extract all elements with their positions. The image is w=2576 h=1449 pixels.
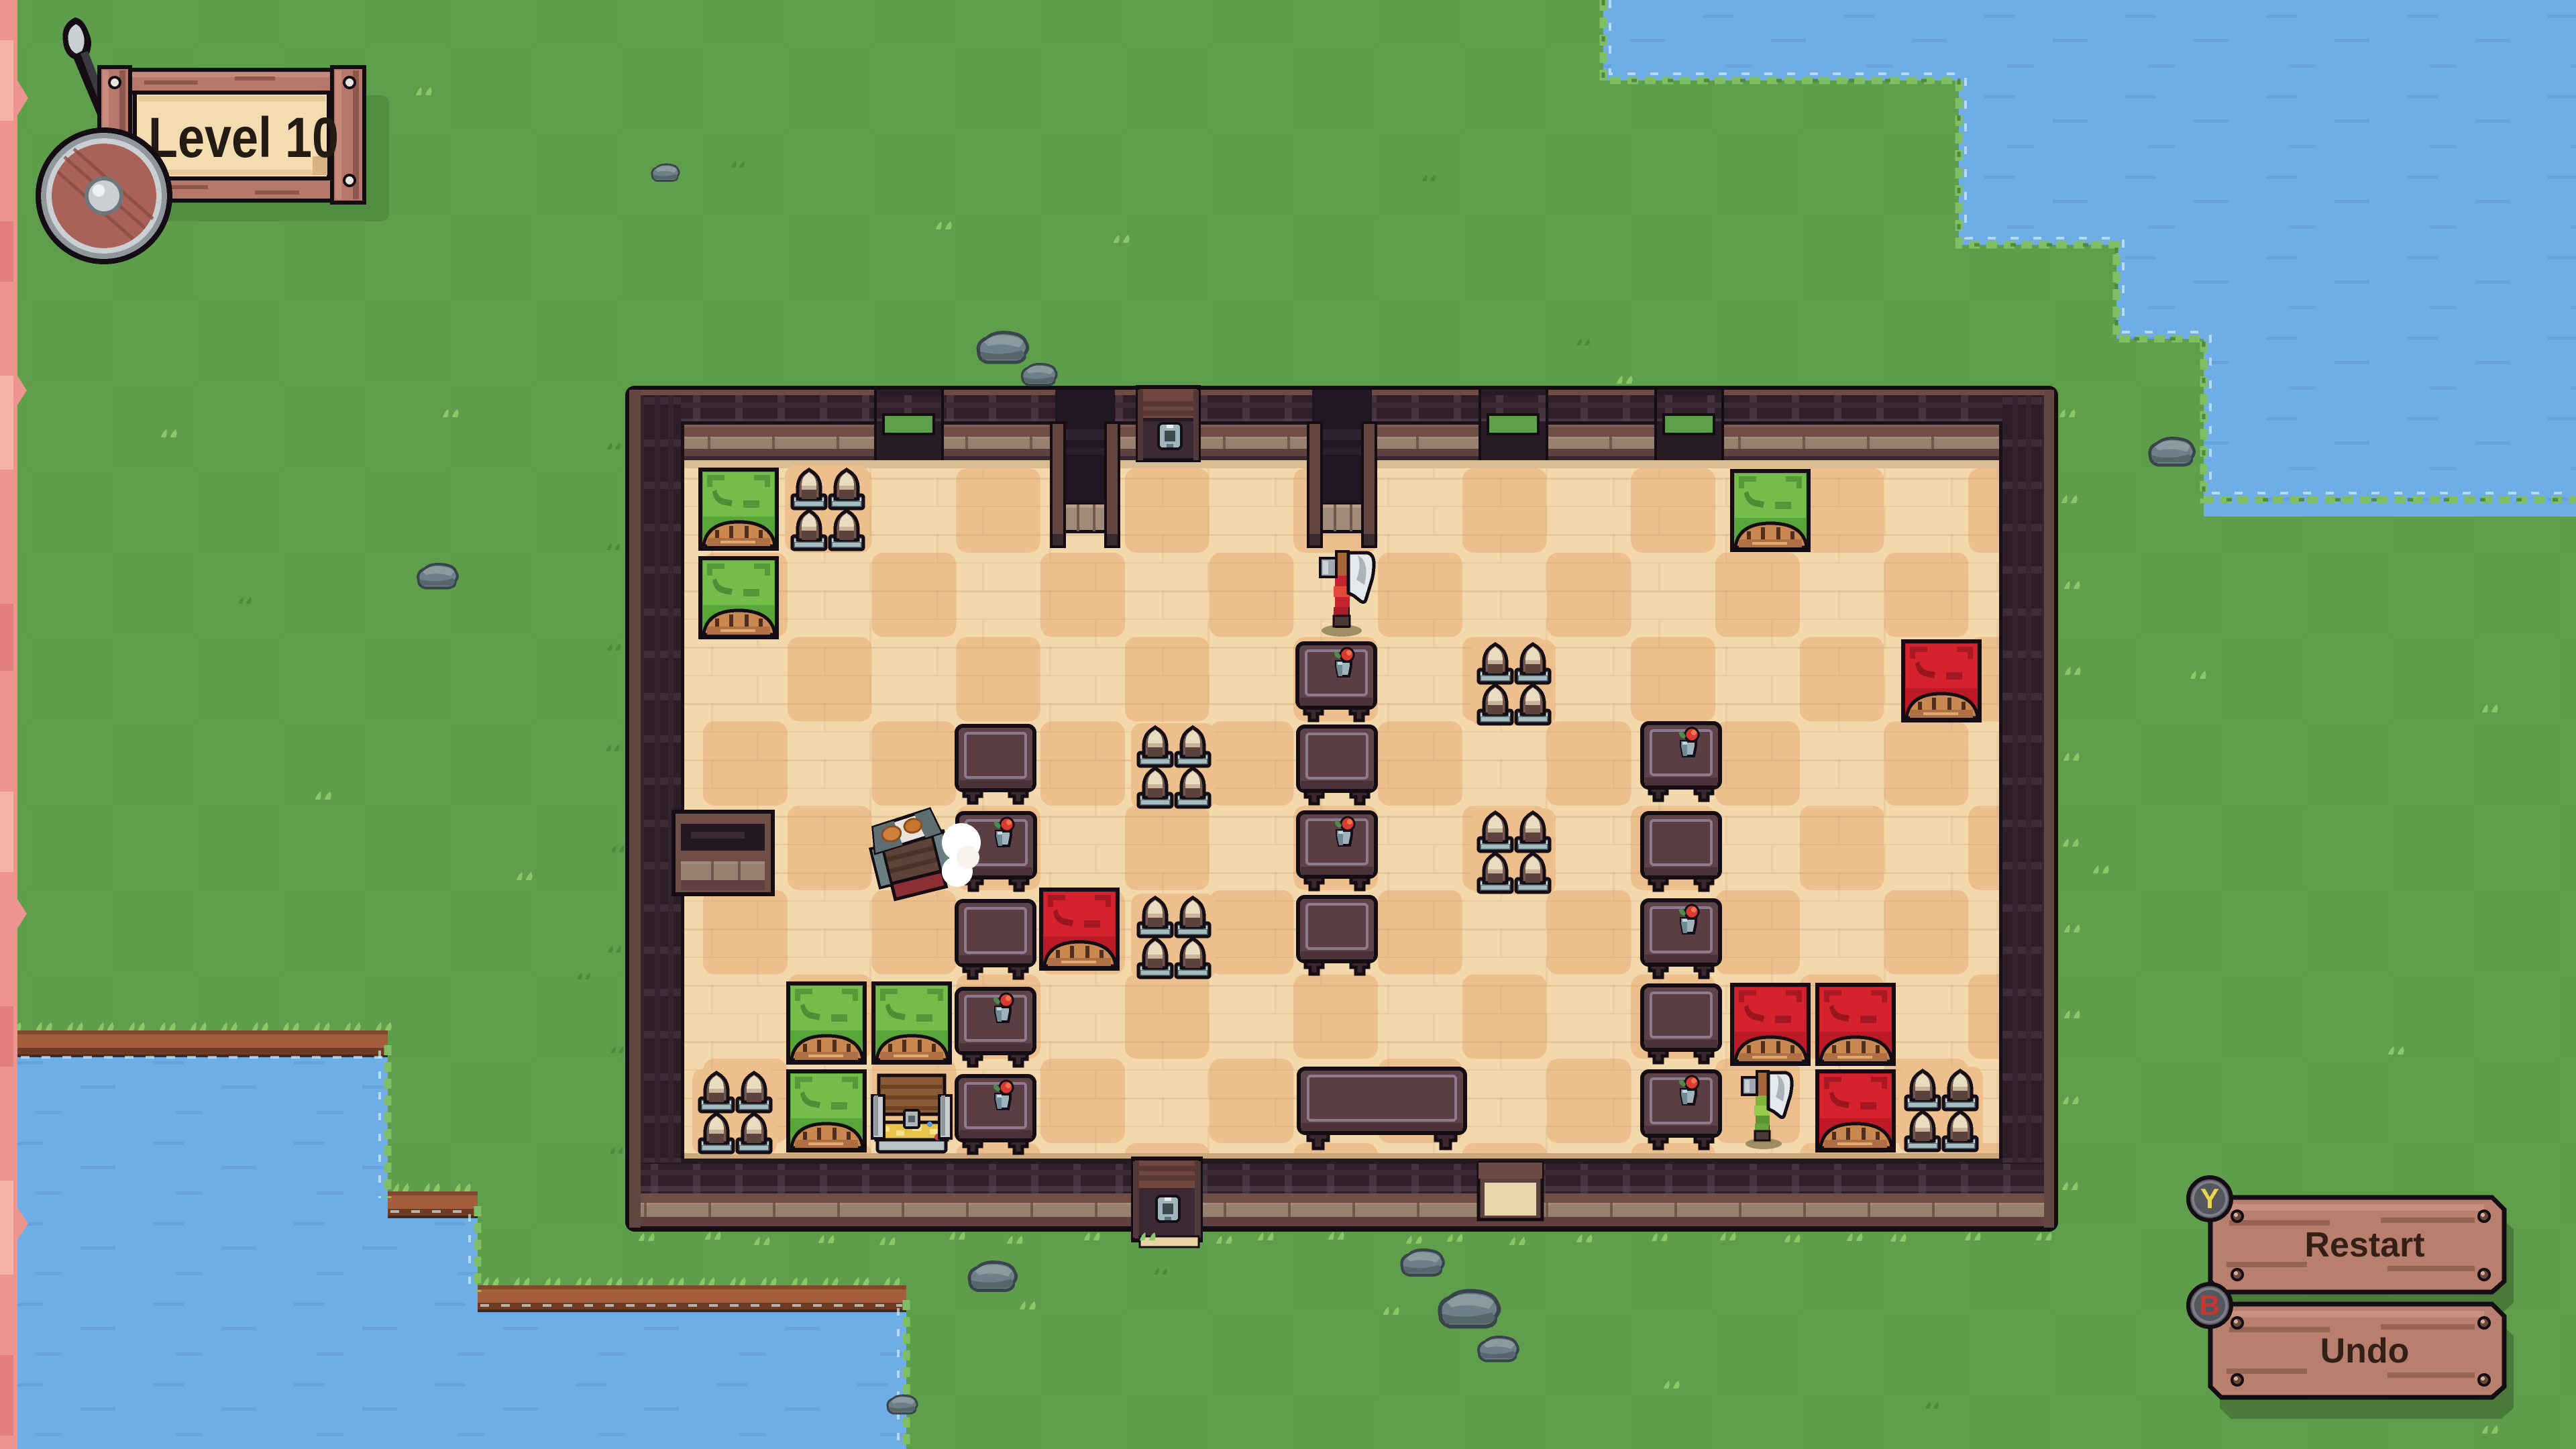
- svg-text:B: B: [2200, 1289, 2220, 1321]
- svg-text:Level 10: Level 10: [148, 106, 339, 169]
- svg-text:Y: Y: [2200, 1183, 2219, 1214]
- svg-text:Restart: Restart: [2304, 1226, 2424, 1265]
- svg-text:Undo: Undo: [2320, 1332, 2410, 1371]
